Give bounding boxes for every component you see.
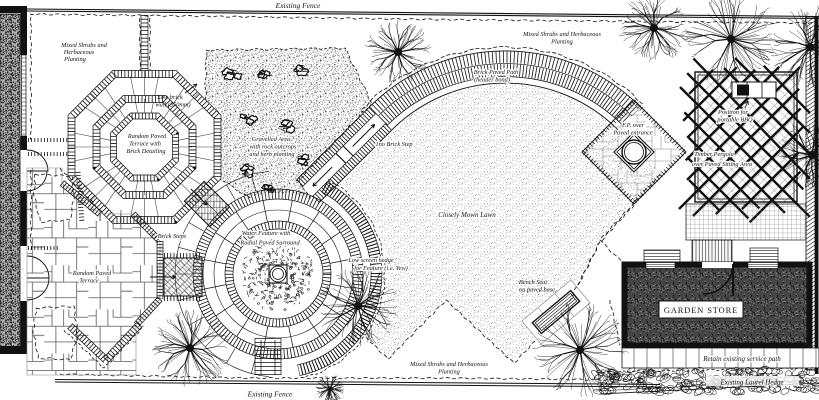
svg-text:Random Paved: Random Paved	[127, 133, 167, 140]
svg-text:portable BBQ: portable BBQ	[716, 117, 753, 124]
svg-text:Planting: Planting	[437, 369, 460, 376]
svg-text:and herb planting: and herb planting	[249, 151, 294, 158]
svg-text:over Paved Sitting Area: over Paved Sitting Area	[692, 161, 752, 168]
svg-text:Low screen hedge: Low screen hedge	[347, 257, 393, 264]
svg-text:Mixed Shrubs and Herbaceous: Mixed Shrubs and Herbaceous	[522, 31, 601, 38]
svg-text:Brick Detailing: Brick Detailing	[127, 148, 166, 155]
svg-text:wall (350mm): wall (350mm)	[155, 102, 190, 109]
svg-text:for Feature (i.e. Yew): for Feature (i.e. Yew)	[354, 265, 408, 272]
svg-text:Herbaceous: Herbaceous	[63, 49, 95, 56]
svg-text:Water Feature with: Water Feature with	[242, 230, 291, 237]
svg-text:Existing Fence: Existing Fence	[275, 1, 321, 10]
svg-text:Existing Fence: Existing Fence	[247, 390, 293, 399]
svg-text:Random Paved: Random Paved	[72, 270, 112, 277]
svg-text:Terrace: Terrace	[79, 278, 99, 285]
svg-text:F.P. over: F.P. over	[621, 122, 645, 129]
svg-text:Brick Steps: Brick Steps	[158, 233, 187, 240]
svg-text:Terrace with: Terrace with	[129, 141, 161, 148]
svg-text:Paved entrance: Paved entrance	[612, 130, 653, 137]
svg-text:Low brick: Low brick	[156, 94, 183, 101]
svg-text:Retain existing service pat: Retain existing service path	[702, 355, 781, 363]
svg-text:1no Brick Step: 1no Brick Step	[375, 141, 412, 148]
svg-text:Planting: Planting	[63, 56, 86, 63]
svg-text:Gravelled Area: Gravelled Area	[252, 136, 291, 143]
svg-text:Position for: Position for	[717, 109, 748, 116]
svg-text:Closely Mown Lawn: Closely Mown Lawn	[438, 211, 496, 219]
svg-text:Mixed Shrubs and: Mixed Shrubs and	[60, 42, 108, 49]
svg-text:Radial Paved Surround: Radial Paved Surround	[239, 240, 300, 247]
svg-text:Bench Seat: Bench Seat	[519, 279, 547, 286]
svg-text:Brick Paved Path: Brick Paved Path	[474, 69, 518, 76]
svg-text:Timber Pergola: Timber Pergola	[694, 151, 733, 158]
svg-text:(header bond): (header bond)	[474, 77, 510, 84]
svg-text:Existing Laurel Hedge: Existing Laurel Hedge	[719, 379, 783, 387]
svg-text:on paved base: on paved base	[519, 287, 555, 294]
svg-text:Mixed Shrubs and Herbaceous: Mixed Shrubs and Herbaceous	[409, 361, 488, 368]
svg-text:GARDEN STORE: GARDEN STORE	[664, 306, 738, 315]
svg-text:with rock outcrops: with rock outcrops	[250, 144, 297, 151]
svg-text:Planting: Planting	[550, 39, 573, 46]
